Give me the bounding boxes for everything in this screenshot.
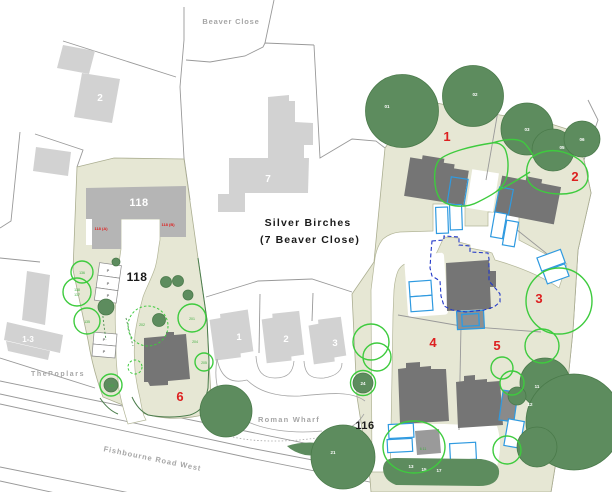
svg-text:P: P — [103, 349, 106, 354]
svg-text:(7 Beaver Close): (7 Beaver Close) — [260, 234, 360, 246]
svg-text:118 (B): 118 (B) — [161, 222, 175, 227]
svg-text:01: 01 — [384, 104, 390, 109]
svg-text:1: 1 — [236, 332, 242, 343]
svg-text:2: 2 — [283, 334, 288, 345]
svg-text:03: 03 — [524, 127, 530, 132]
svg-text:5: 5 — [493, 338, 500, 353]
svg-text:130: 130 — [108, 384, 114, 388]
svg-text:202: 202 — [139, 323, 145, 327]
svg-text:P: P — [107, 268, 110, 273]
svg-text:Roman Wharf: Roman Wharf — [258, 415, 320, 424]
svg-text:P: P — [107, 281, 110, 286]
svg-text:13: 13 — [408, 464, 414, 469]
svg-text:02: 02 — [472, 92, 478, 97]
svg-text:1-3: 1-3 — [22, 335, 34, 344]
svg-text:21: 21 — [330, 450, 336, 455]
svg-text:P: P — [107, 293, 110, 298]
svg-text:24: 24 — [360, 381, 366, 386]
svg-text:136: 136 — [79, 271, 85, 275]
svg-text:137: 137 — [74, 293, 80, 297]
svg-text:1: 1 — [443, 129, 450, 144]
svg-text:118 (A): 118 (A) — [94, 226, 108, 231]
svg-text:12: 12 — [527, 402, 533, 407]
svg-text:204: 204 — [192, 340, 198, 344]
svg-text:118: 118 — [127, 270, 148, 284]
svg-text:2: 2 — [571, 169, 578, 184]
svg-text:205: 205 — [201, 361, 207, 365]
svg-text:P: P — [103, 337, 106, 342]
svg-text:7: 7 — [265, 174, 271, 185]
svg-text:2: 2 — [97, 93, 103, 104]
svg-text:17: 17 — [436, 468, 442, 473]
svg-text:3: 3 — [332, 338, 337, 349]
svg-text:Beaver Close: Beaver Close — [202, 17, 259, 26]
svg-text:6: 6 — [176, 389, 183, 404]
svg-text:201: 201 — [189, 317, 195, 321]
svg-text:135: 135 — [84, 320, 90, 324]
svg-text:11: 11 — [535, 384, 540, 389]
svg-text:6 11: 6 11 — [420, 447, 427, 451]
svg-text:Silver Birches: Silver Birches — [265, 217, 352, 229]
svg-text:05: 05 — [559, 145, 565, 150]
svg-text:4: 4 — [429, 335, 437, 350]
svg-text:138: 138 — [74, 288, 80, 292]
svg-text:06: 06 — [579, 137, 585, 142]
svg-text:118: 118 — [129, 197, 148, 209]
svg-text:3: 3 — [535, 291, 542, 306]
svg-text:116: 116 — [355, 420, 374, 432]
svg-text:ThePoplars: ThePoplars — [31, 371, 85, 378]
